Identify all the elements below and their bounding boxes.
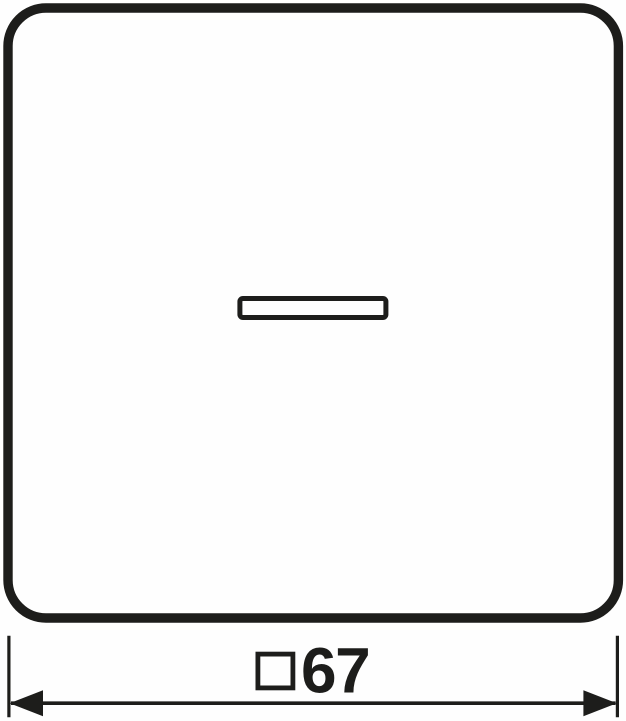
svg-text:67: 67 [301, 635, 369, 707]
